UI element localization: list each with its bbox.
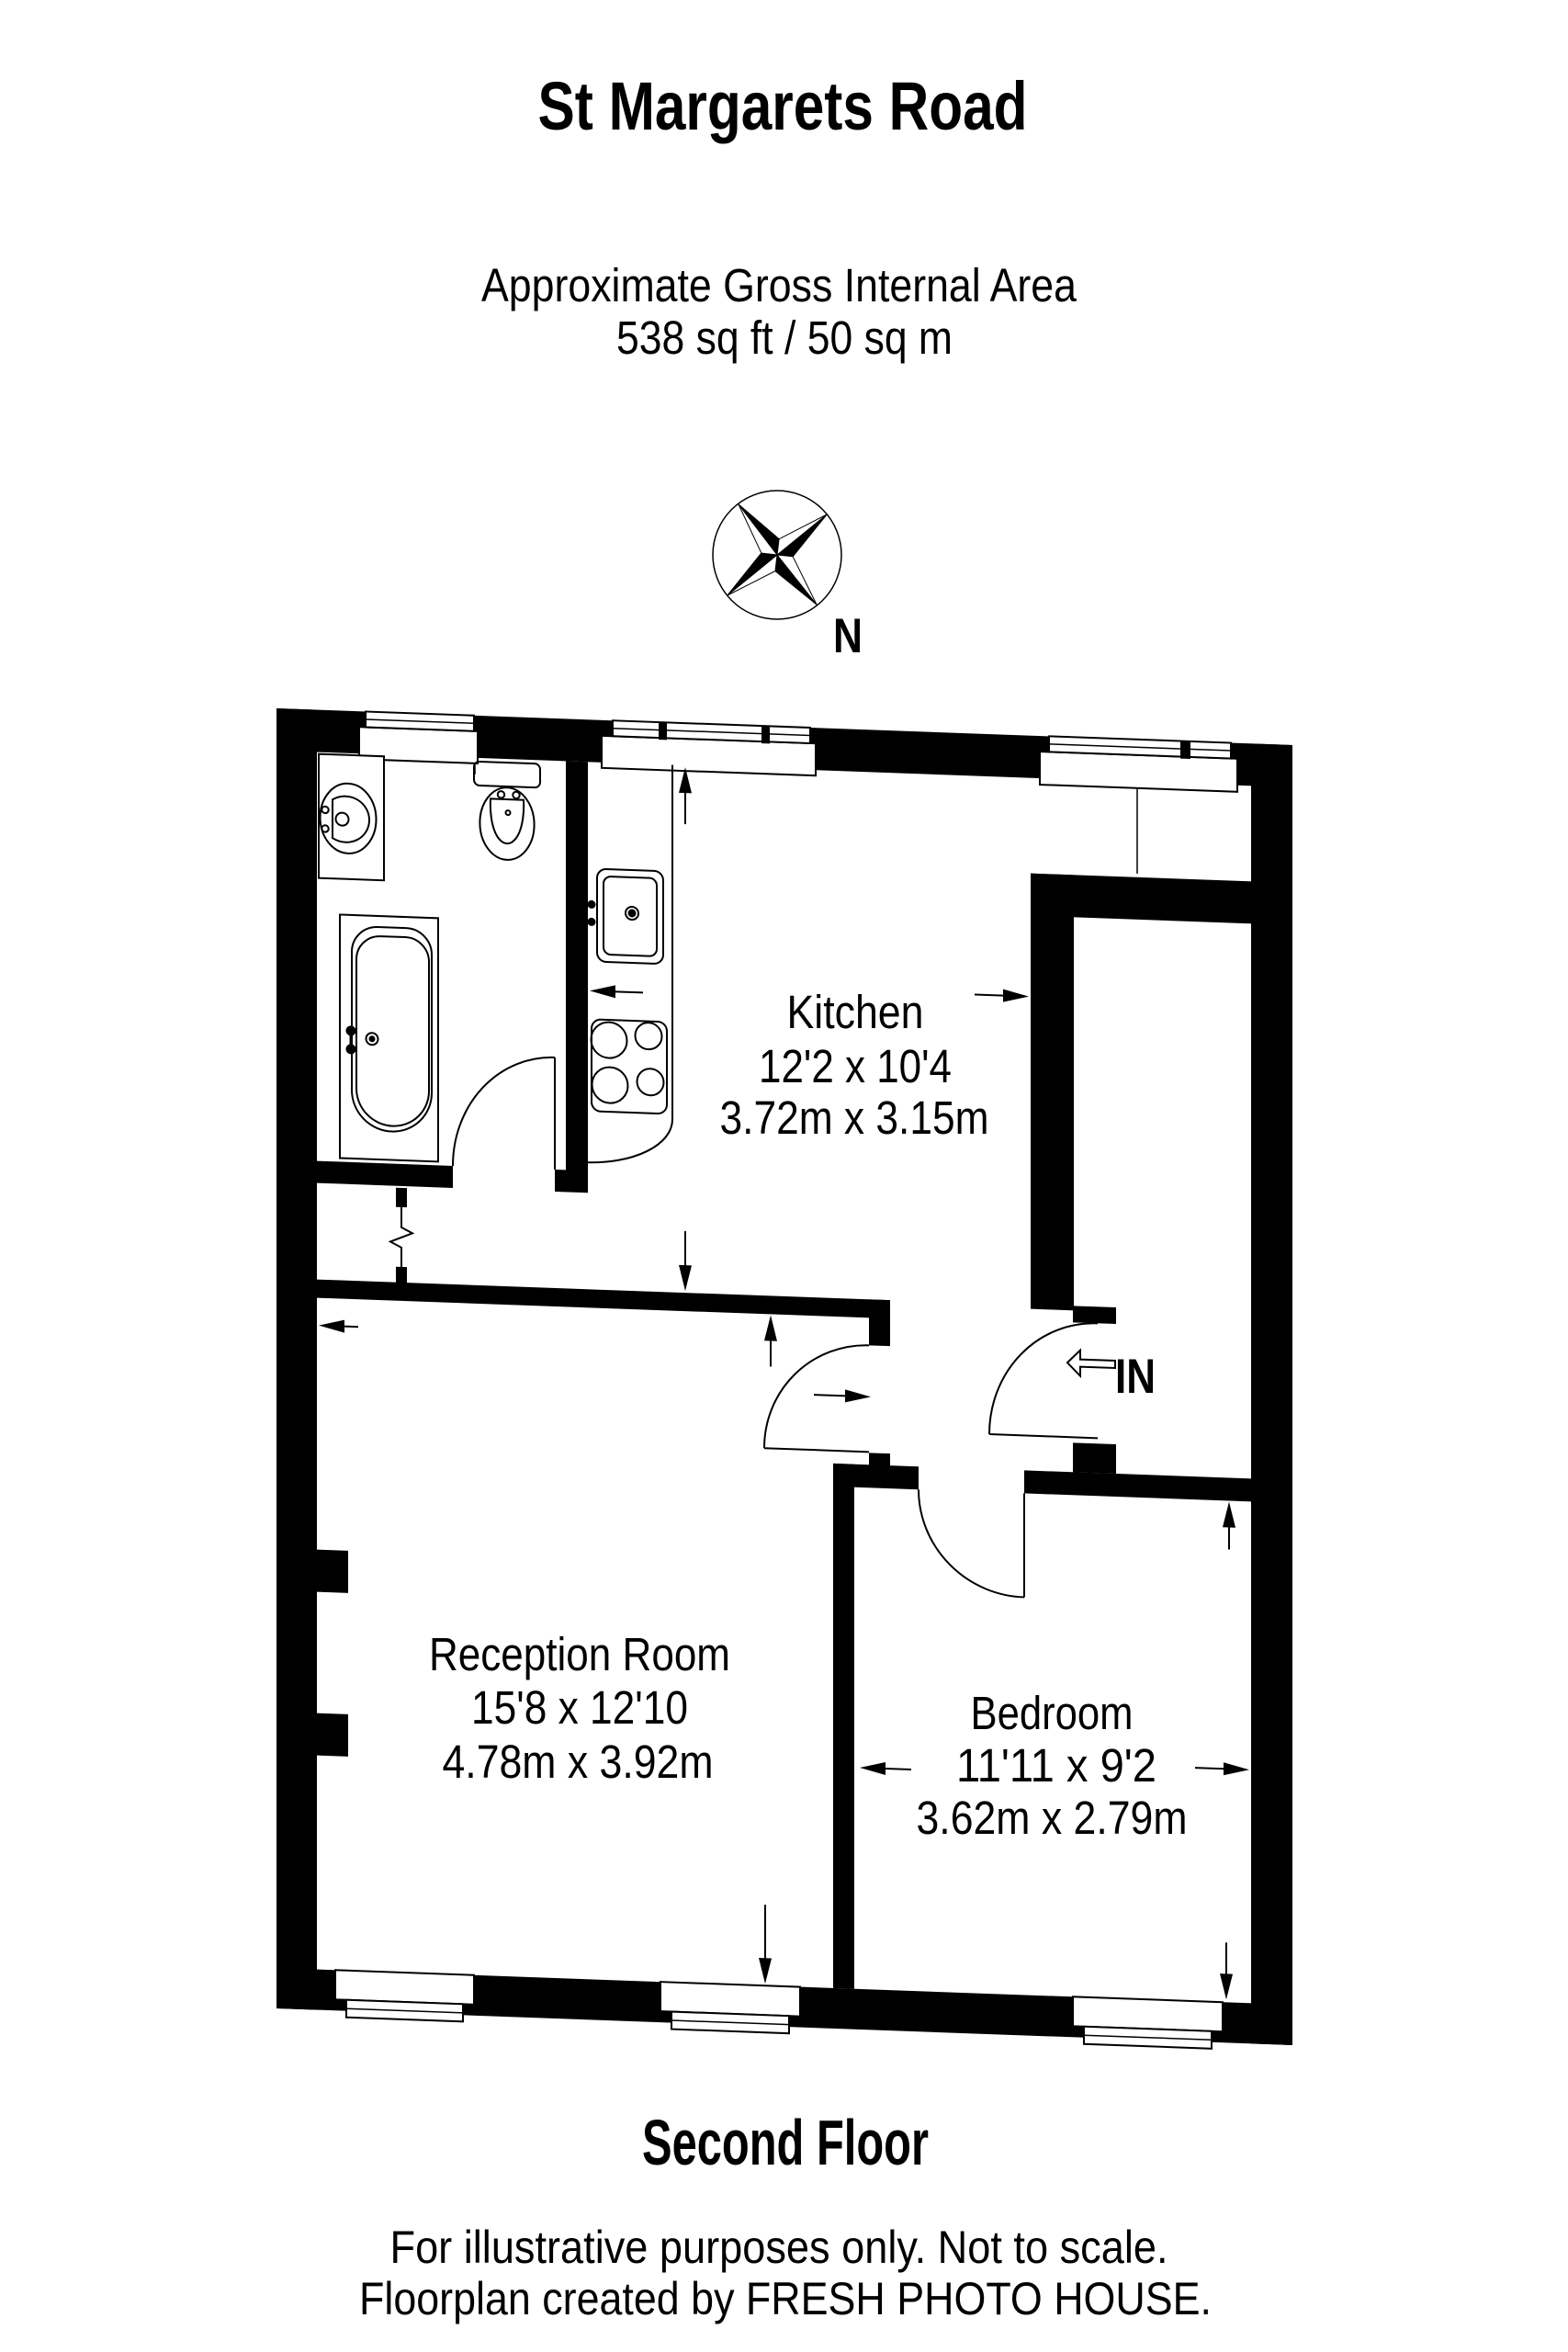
svg-text:St Margarets Road: St Margarets Road: [538, 68, 1028, 144]
svg-text:4.78m x 3.92m: 4.78m x 3.92m: [443, 1736, 714, 1788]
svg-text:3.72m x 3.15m: 3.72m x 3.15m: [720, 1091, 989, 1144]
svg-text:IN: IN: [1115, 1350, 1156, 1404]
svg-text:538 sq ft / 50 sq m: 538 sq ft / 50 sq m: [616, 311, 953, 364]
svg-text:Kitchen: Kitchen: [787, 986, 924, 1038]
svg-text:11'11 x 9'2: 11'11 x 9'2: [956, 1739, 1156, 1792]
svg-text:Reception Room: Reception Room: [429, 1628, 730, 1680]
svg-text:Floorplan created by FRESH PHO: Floorplan created by FRESH PHOTO HOUSE.: [359, 2273, 1212, 2324]
svg-text:12'2 x 10'4: 12'2 x 10'4: [759, 1040, 952, 1092]
svg-text:3.62m x 2.79m: 3.62m x 2.79m: [917, 1792, 1188, 1844]
svg-text:N: N: [833, 609, 863, 663]
svg-text:For illustrative purposes only: For illustrative purposes only. Not to s…: [390, 2222, 1168, 2273]
svg-text:15'8 x 12'10: 15'8 x 12'10: [471, 1681, 688, 1734]
svg-text:Bedroom: Bedroom: [971, 1687, 1134, 1739]
svg-text:Second Floor: Second Floor: [642, 2107, 929, 2178]
svg-text:Approximate Gross Internal Are: Approximate Gross Internal Area: [481, 259, 1077, 311]
